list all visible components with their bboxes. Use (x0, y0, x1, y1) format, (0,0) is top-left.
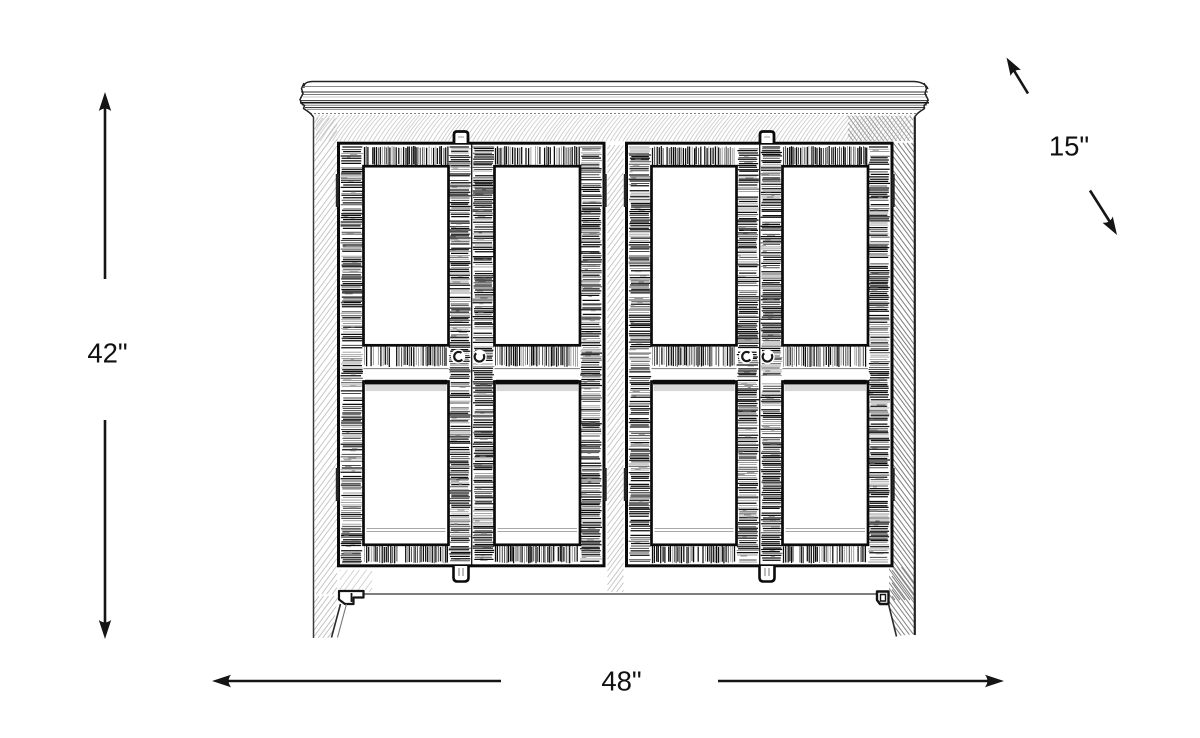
svg-text:42": 42" (87, 338, 127, 369)
svg-text:15": 15" (1049, 131, 1089, 162)
svg-text:48": 48" (601, 666, 641, 697)
